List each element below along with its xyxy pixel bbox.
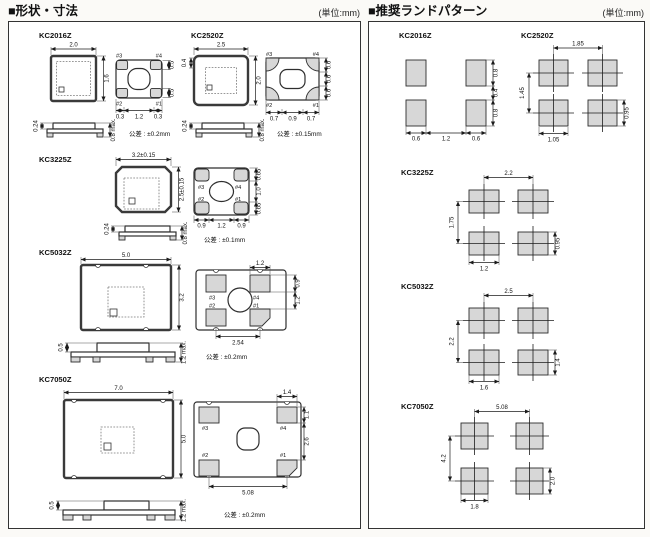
pin-label: #3 bbox=[116, 54, 122, 60]
package-outline bbox=[116, 167, 171, 212]
corner-pad bbox=[206, 309, 226, 326]
base bbox=[47, 129, 103, 133]
tolerance-note: 公差 : ±0.2mm bbox=[129, 129, 170, 138]
land-kc3225z: KC3225Z 2.2 1.75 1.2 0.95 bbox=[401, 168, 562, 273]
section-label: KC5032Z bbox=[39, 248, 72, 257]
corner-pad bbox=[234, 202, 248, 214]
dim-label: 0.8 max. bbox=[260, 118, 266, 141]
land-panel-header: ■推奨ランドパターン (単位:mm) bbox=[368, 2, 644, 19]
section-kc7050z: KC7050Z 7.0 5.0 bbox=[39, 375, 311, 522]
dim-label: 0.7 bbox=[270, 117, 279, 123]
tolerance-note: 公差 : ±0.15mm bbox=[277, 129, 322, 138]
pin-label: #2 bbox=[116, 102, 122, 108]
base bbox=[63, 510, 175, 515]
foot bbox=[47, 133, 53, 137]
dim-label: 0.8 max. bbox=[111, 118, 117, 141]
dim-label: 0.6 bbox=[412, 137, 421, 143]
dim-label: 1.85 bbox=[572, 42, 584, 48]
dim-label: 0.8 bbox=[494, 68, 500, 77]
dim-label: 2.6 bbox=[305, 437, 311, 446]
dim-label: 1.6 bbox=[480, 386, 489, 392]
edge-notch bbox=[161, 476, 166, 478]
dim-label: 0.6 bbox=[327, 60, 333, 69]
package-outline bbox=[81, 265, 171, 330]
dim-label: 0.95 bbox=[625, 107, 631, 119]
land-kc5032z: KC5032Z 2.5 2.2 1.6 1.4 bbox=[401, 282, 562, 392]
pin-label: #3 bbox=[266, 52, 272, 58]
land-pad bbox=[406, 100, 426, 126]
kc2520z-bottom-view: #3 #4 #2 #1 0.7 0.9 0.7 0.6 0.6 0.6 bbox=[266, 52, 333, 123]
lid bbox=[202, 123, 244, 129]
pin1-mark bbox=[104, 443, 111, 450]
section-label: KC3225Z bbox=[39, 155, 72, 164]
pin-label: #1 bbox=[313, 103, 319, 109]
pin-label: #4 bbox=[253, 296, 259, 302]
section-kc3225z: KC3225Z 3.2±0.15 2.5±0.15 0.24 bbox=[39, 153, 263, 245]
edge-notch bbox=[207, 402, 212, 405]
dim-label: 2.2 bbox=[450, 337, 456, 346]
dim-label: 0.9 bbox=[237, 224, 246, 230]
pin-label: #1 bbox=[235, 197, 241, 203]
dim-label: 0.8 max. bbox=[183, 221, 189, 244]
dim-label: 2.2 bbox=[504, 171, 513, 177]
dim-label: 0.3 bbox=[116, 115, 125, 121]
foot bbox=[83, 515, 91, 520]
dim-label: 3.2 bbox=[180, 293, 186, 302]
section-label: KC7050Z bbox=[401, 402, 434, 411]
section-label: KC7050Z bbox=[39, 375, 72, 384]
dim-label: 0.6 bbox=[327, 74, 333, 83]
kc3225z-top-view: 3.2±0.15 2.5±0.15 bbox=[116, 153, 186, 212]
dim-label: 0.24 bbox=[34, 120, 40, 132]
package-outline bbox=[51, 56, 96, 101]
foot bbox=[170, 236, 176, 240]
section-label: KC2016Z bbox=[39, 31, 72, 40]
section-kc5032z: KC5032Z 5.0 3.2 bbox=[39, 248, 302, 364]
kc2520z-side-view: 0.24 0.8 max. bbox=[183, 118, 267, 141]
shape-drawings: KC2016Z 2.0 1.6 #3 #4 bbox=[9, 22, 359, 527]
dim-label: 1.2 max. bbox=[182, 341, 188, 364]
dim-label: 0.24 bbox=[105, 223, 111, 235]
dim-label: 2.0 bbox=[257, 76, 263, 85]
edge-notch bbox=[96, 328, 101, 331]
pin-label: #4 bbox=[235, 185, 241, 191]
land-kc2520z: KC2520Z 1.85 1.45 1.05 0.95 bbox=[520, 31, 631, 144]
dim-label: 2.54 bbox=[232, 341, 244, 347]
shape-panel-header: ■形状・寸法 (単位:mm) bbox=[8, 2, 360, 19]
kc3225z-side-view: 0.24 0.8 max. bbox=[105, 221, 190, 244]
pin1-mark bbox=[59, 87, 64, 92]
dim-label: 0.9 bbox=[288, 117, 297, 123]
dim-label: 2.5±0.15 bbox=[180, 177, 186, 201]
edge-notch bbox=[96, 265, 101, 268]
dim-label: 0.5 bbox=[170, 60, 176, 69]
section-label: KC5032Z bbox=[401, 282, 434, 291]
pin-label: #3 bbox=[198, 185, 204, 191]
dim-label: 1.2 bbox=[256, 261, 265, 267]
dim-label: 7.0 bbox=[114, 386, 123, 392]
dim-label: 0.5 bbox=[170, 88, 176, 97]
pin1-mark bbox=[110, 309, 117, 316]
edge-notch bbox=[258, 270, 263, 273]
dim-label: 2.5 bbox=[217, 43, 226, 49]
section-label: KC2016Z bbox=[399, 31, 432, 40]
dim-label: 5.08 bbox=[496, 405, 508, 411]
base bbox=[71, 352, 175, 357]
land-panel: KC2016Z 0.8 0.4 0.8 0.6 1.2 0.6 KC2520Z bbox=[368, 21, 645, 529]
dim-label: 1.1 bbox=[305, 410, 311, 419]
dim-label: 4.2 bbox=[442, 454, 448, 463]
foot bbox=[97, 133, 103, 137]
dim-label: 1.2 bbox=[442, 137, 451, 143]
dim-label: 1.2 bbox=[135, 115, 144, 121]
corner-pad bbox=[199, 460, 219, 476]
section-kc2016z: KC2016Z 2.0 1.6 #3 #4 bbox=[34, 31, 176, 142]
dim-label: 0.4 bbox=[494, 88, 500, 97]
kc2016z-bottom-view: #3 #4 #2 #1 0.3 1.2 0.3 0.5 0.5 bbox=[116, 54, 176, 121]
foot bbox=[165, 515, 175, 520]
pin-label: #1 bbox=[253, 304, 259, 310]
corner-pad bbox=[150, 88, 161, 97]
foot bbox=[71, 357, 80, 362]
pin-label: #2 bbox=[198, 197, 204, 203]
corner-pad bbox=[234, 169, 248, 181]
edge-notch bbox=[214, 270, 219, 273]
dim-label: 1.8 bbox=[470, 505, 479, 511]
dim-label: 0.65 bbox=[257, 202, 263, 214]
kc7050z-side-view: 0.5 1.2 max. bbox=[50, 499, 188, 522]
dim-label: 0.6 bbox=[472, 137, 481, 143]
pin1-mark bbox=[129, 198, 135, 204]
shape-panel-unit: (単位:mm) bbox=[319, 6, 361, 19]
dim-label: 2.5 bbox=[504, 289, 513, 295]
dim-label: 1.45 bbox=[520, 87, 526, 99]
package-outline bbox=[64, 400, 173, 478]
foot bbox=[246, 133, 252, 137]
kc5032z-top-view: 5.0 3.2 bbox=[81, 253, 186, 330]
dim-label: 1.75 bbox=[450, 216, 456, 228]
dim-label: 3.2±0.15 bbox=[132, 153, 156, 159]
pin-label: #2 bbox=[209, 304, 215, 310]
foot bbox=[166, 357, 175, 362]
dim-label: 0.95 bbox=[556, 237, 562, 249]
section-kc2520z: KC2520Z 2.5 2.0 0.4 bbox=[182, 31, 333, 142]
dim-label: 1.6 bbox=[105, 74, 111, 83]
corner-pad bbox=[150, 61, 161, 70]
dim-label: 0.65 bbox=[257, 168, 263, 180]
dim-label: 0.5 bbox=[59, 343, 65, 352]
dim-label: 5.08 bbox=[242, 491, 254, 497]
dim-label: 1.4 bbox=[283, 390, 292, 396]
dim-label: 1.05 bbox=[548, 138, 560, 144]
corner-pad bbox=[206, 275, 226, 292]
dim-label: 2.0 bbox=[69, 43, 78, 49]
dim-label: 0.6 bbox=[327, 88, 333, 97]
crystal-cavity bbox=[228, 288, 252, 312]
pin-label: #1 bbox=[156, 102, 162, 108]
edge-notch bbox=[144, 265, 149, 268]
dim-label: 0.9 bbox=[296, 279, 302, 288]
edge-notch bbox=[161, 400, 166, 403]
land-pad bbox=[466, 60, 486, 86]
tolerance-note: 公差 : ±0.1mm bbox=[204, 235, 245, 244]
land-panel-unit: (単位:mm) bbox=[603, 6, 645, 19]
datasheet-page: ■形状・寸法 (単位:mm) ■推奨ランドパターン (単位:mm) KC2016… bbox=[0, 0, 650, 537]
dim-label: 0.8 bbox=[494, 108, 500, 117]
package-outline bbox=[194, 56, 248, 105]
dim-label: 0.7 bbox=[307, 117, 316, 123]
foot bbox=[147, 515, 155, 520]
land-panel-title: ■推奨ランドパターン bbox=[368, 0, 487, 19]
dim-label: 1.4 bbox=[556, 358, 562, 367]
section-label: KC2520Z bbox=[191, 31, 224, 40]
foot bbox=[146, 357, 153, 362]
section-label: KC3225Z bbox=[401, 168, 434, 177]
dim-label: 0.4 bbox=[182, 58, 188, 67]
pin-label: #2 bbox=[202, 453, 208, 459]
land-pad bbox=[406, 60, 426, 86]
base bbox=[196, 129, 252, 133]
dim-label: 0.5 bbox=[50, 501, 56, 510]
corner-pad bbox=[250, 275, 270, 292]
crystal-cavity bbox=[237, 428, 259, 450]
dim-label: 1.2 bbox=[296, 296, 302, 305]
pin-label: #4 bbox=[313, 52, 319, 58]
pin-label: #4 bbox=[280, 426, 286, 432]
edge-notch bbox=[144, 328, 149, 331]
dim-label: 1.0 bbox=[257, 187, 263, 196]
foot bbox=[196, 133, 202, 137]
base bbox=[119, 232, 176, 236]
tolerance-note: 公差 : ±0.2mm bbox=[224, 510, 265, 519]
dim-label: 0.3 bbox=[154, 115, 163, 121]
kc2016z-side-view: 0.24 0.8 max. bbox=[34, 118, 118, 141]
foot bbox=[119, 236, 125, 240]
shape-panel: KC2016Z 2.0 1.6 #3 #4 bbox=[8, 21, 361, 529]
pin-label: #1 bbox=[280, 453, 286, 459]
kc7050z-bottom-view: #3 #4 #2 #1 1.4 1.1 2.6 5.08 bbox=[194, 390, 311, 497]
corner-pad bbox=[195, 169, 209, 181]
kc2016z-top-view: 2.0 1.6 bbox=[51, 43, 111, 102]
dim-label: 0.9 bbox=[197, 224, 206, 230]
edge-notch bbox=[72, 476, 77, 478]
edge-notch bbox=[285, 402, 290, 405]
edge-notch bbox=[72, 400, 77, 403]
foot bbox=[93, 357, 100, 362]
section-label: KC2520Z bbox=[521, 31, 554, 40]
kc7050z-top-view: 7.0 5.0 bbox=[64, 386, 188, 478]
corner-pad bbox=[117, 88, 128, 97]
land-kc2016z: KC2016Z 0.8 0.4 0.8 0.6 1.2 0.6 bbox=[399, 31, 500, 143]
crystal-cavity bbox=[128, 69, 150, 90]
crystal-cavity bbox=[210, 182, 234, 202]
pin-label: #2 bbox=[266, 103, 272, 109]
kc2520z-top-view: 2.5 2.0 0.4 bbox=[182, 43, 263, 106]
corner-pad bbox=[195, 202, 209, 214]
corner-pad bbox=[199, 407, 219, 423]
tolerance-note: 公差 : ±0.2mm bbox=[206, 352, 247, 361]
pin1-mark bbox=[207, 85, 212, 90]
kc3225z-bottom-view: #3 #4 #2 #1 0.9 1.2 0.9 0.65 1.0 0.65 bbox=[194, 168, 263, 230]
dim-label: 1.2 max. bbox=[182, 499, 188, 522]
dim-label: 1.2 bbox=[217, 224, 226, 230]
foot bbox=[63, 515, 73, 520]
lid bbox=[53, 123, 95, 129]
land-pad bbox=[466, 100, 486, 126]
land-kc7050z: KC7050Z 5.08 4.2 1.8 2.0 bbox=[401, 402, 557, 511]
land-drawings: KC2016Z 0.8 0.4 0.8 0.6 1.2 0.6 KC2520Z bbox=[369, 22, 643, 527]
pin-label: #4 bbox=[156, 54, 162, 60]
dim-label: 5.0 bbox=[122, 253, 131, 259]
corner-pad bbox=[117, 61, 128, 70]
dim-label: 5.0 bbox=[182, 434, 188, 443]
kc5032z-bottom-view: #3 #4 #2 #1 1.2 0.9 1.2 2.54 bbox=[196, 261, 302, 347]
kc5032z-side-view: 0.5 1.2 max. bbox=[59, 341, 188, 364]
lid bbox=[125, 226, 170, 232]
pin-label: #3 bbox=[209, 296, 215, 302]
lid bbox=[104, 501, 149, 510]
lid bbox=[97, 343, 149, 352]
pin-label: #3 bbox=[202, 426, 208, 432]
dim-label: 0.24 bbox=[183, 120, 189, 132]
shape-panel-title: ■形状・寸法 bbox=[8, 0, 78, 19]
dim-label: 1.2 bbox=[480, 267, 489, 273]
corner-pad bbox=[277, 407, 297, 423]
crystal-cavity bbox=[280, 70, 305, 89]
dim-label: 2.0 bbox=[551, 476, 557, 485]
